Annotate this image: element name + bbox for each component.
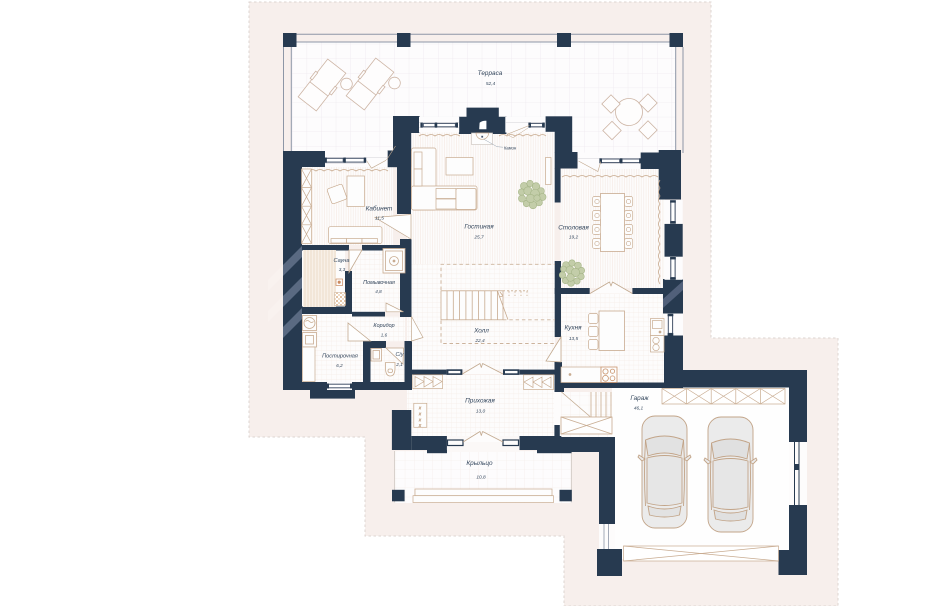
svg-text:Кухня: Кухня (564, 325, 582, 332)
svg-text:19,2: 19,2 (569, 235, 579, 241)
svg-text:Кабинет: Кабинет (366, 205, 393, 213)
svg-text:10,8: 10,8 (476, 475, 486, 481)
svg-text:Прихожая: Прихожая (465, 398, 495, 405)
svg-text:3,3: 3,3 (339, 267, 346, 272)
svg-text:Гостиная: Гостиная (464, 224, 494, 231)
svg-text:25,7: 25,7 (473, 235, 484, 241)
svg-text:Гараж: Гараж (630, 395, 649, 402)
svg-text:Помывочная: Помывочная (363, 280, 395, 286)
svg-text:Коридор: Коридор (373, 323, 394, 329)
svg-text:С/у: С/у (395, 352, 403, 358)
svg-text:Крыльцо: Крыльцо (466, 460, 493, 467)
svg-text:6,2: 6,2 (336, 363, 343, 368)
svg-text:x: x (418, 412, 421, 416)
svg-text:4,8: 4,8 (375, 289, 382, 294)
svg-text:Постирочная: Постирочная (322, 354, 358, 360)
svg-text:52,4: 52,4 (486, 81, 496, 87)
svg-text:Сауна: Сауна (333, 258, 349, 264)
svg-text:x: x (418, 418, 421, 422)
svg-text:x: x (418, 406, 421, 410)
svg-text:13,0: 13,0 (476, 409, 486, 415)
svg-text:13,5: 13,5 (569, 336, 579, 342)
svg-text:x: x (418, 424, 421, 428)
svg-text:46,1: 46,1 (634, 406, 644, 412)
svg-text:Терраса: Терраса (478, 70, 503, 77)
svg-text:2,1: 2,1 (395, 362, 403, 367)
svg-text:11,5: 11,5 (375, 216, 384, 222)
svg-text:Холл: Холл (473, 328, 489, 335)
svg-text:22,4: 22,4 (474, 338, 485, 344)
svg-text:Столовая: Столовая (558, 225, 589, 232)
svg-text:Камин: Камин (504, 146, 517, 151)
svg-text:1,6: 1,6 (381, 333, 388, 338)
